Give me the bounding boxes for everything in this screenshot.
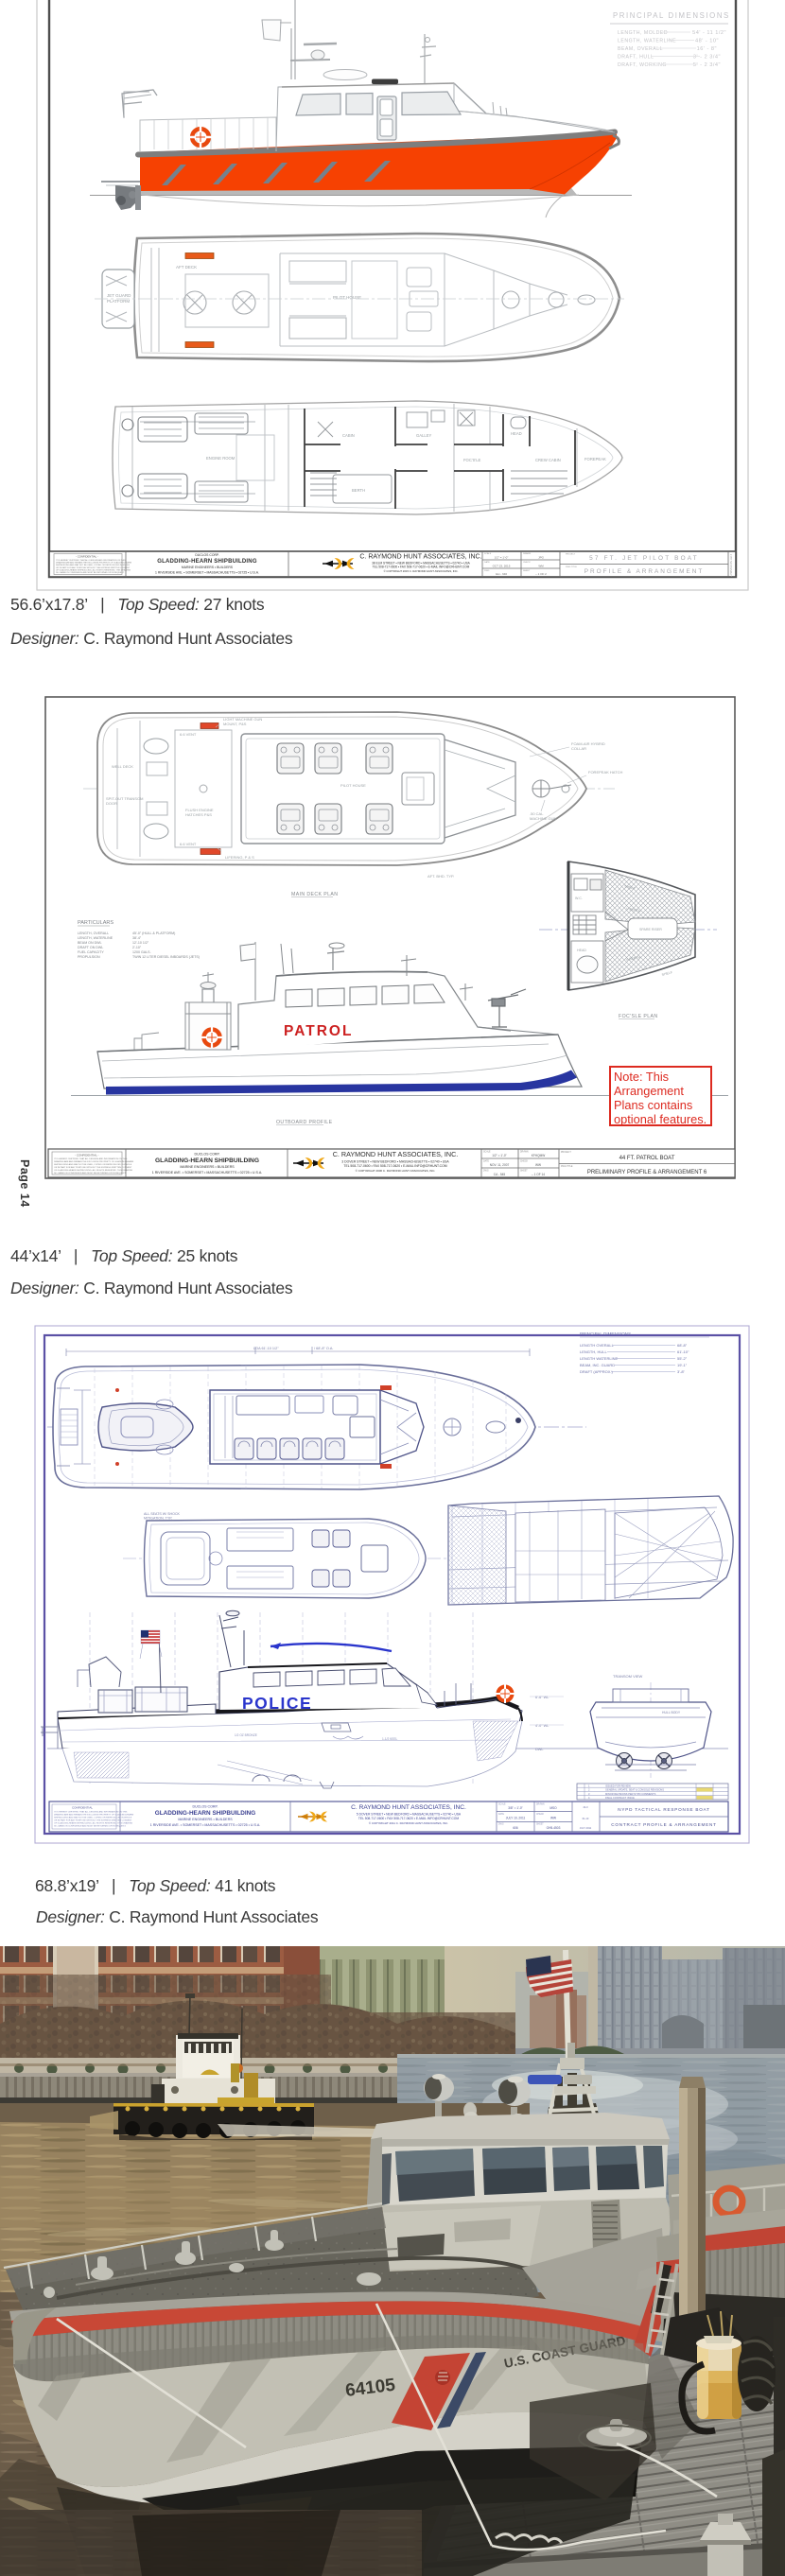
svg-text:PILOT HOUSE: PILOT HOUSE bbox=[340, 783, 366, 788]
svg-text:SHIPBUILDING AND MAY NOT BE US: SHIPBUILDING AND MAY NOT BE USED, COPIED… bbox=[54, 1163, 132, 1166]
svg-text:57 FT. JET PILOT BOAT: 57 FT. JET PILOT BOAT bbox=[589, 555, 699, 562]
svg-text:DWG TITLE: DWG TITLE bbox=[561, 1166, 573, 1168]
svg-text:IS LOANED IN CONFIDENCE AND MU: IS LOANED IN CONFIDENCE AND MUST BE RETU… bbox=[54, 1825, 127, 1828]
svg-text:1/2 OZ BRONZE: 1/2 OZ BRONZE bbox=[235, 1733, 257, 1737]
svg-text:PRINCIPAL DIMENSIONS: PRINCIPAL DIMENSIONS bbox=[580, 1332, 631, 1336]
svg-text:DUCLOS CORP.: DUCLOS CORP. bbox=[195, 553, 219, 557]
svg-text:C. RAYMOND HUNT ASSOCIATES, IN: C. RAYMOND HUNT ASSOCIATES, INC. bbox=[333, 1150, 459, 1158]
svg-text:TEL 508-717-0600 • FAX 508-717: TEL 508-717-0600 • FAX 508-717-0620 • E-… bbox=[358, 1817, 459, 1820]
svg-text:■ PRINTED ON 11x17: ■ PRINTED ON 11x17 bbox=[730, 553, 733, 577]
svg-text:GLADDING-HEARN SHIPBUILDING: GLADDING-HEARN SHIPBUILDING bbox=[157, 559, 257, 565]
svg-text:DRAFT, WORKING: DRAFT, WORKING bbox=[618, 62, 667, 68]
svg-text:GLADDING-HEARN SHIPBUILDING: GLADDING-HEARN SHIPBUILDING bbox=[155, 1810, 256, 1817]
svg-text:CHECK: CHECK bbox=[536, 1814, 545, 1816]
svg-text:WM: WM bbox=[538, 565, 544, 568]
svg-text:DRAWN: DRAWN bbox=[523, 552, 532, 555]
svg-text:LENGTH, MOLDED: LENGTH, MOLDED bbox=[618, 30, 668, 36]
svg-text:IS LOANED IN CONFIDENCE AND MU: IS LOANED IN CONFIDENCE AND MUST BE RETU… bbox=[56, 571, 125, 574]
svg-text:GLADDING-HEARN SHIPBUILDING: GLADDING-HEARN SHIPBUILDING bbox=[155, 1157, 259, 1164]
svg-text:FOREPEAK HATCH: FOREPEAK HATCH bbox=[588, 770, 622, 775]
svg-text:SHIPBUILDING AND MAY NOT BE US: SHIPBUILDING AND MAY NOT BE USED, COPIED… bbox=[54, 1817, 132, 1819]
svg-text:- CONFIDENTIAL -: - CONFIDENTIAL - bbox=[76, 555, 98, 559]
svg-text:LENGTH WATERLINE: LENGTH WATERLINE bbox=[580, 1356, 619, 1361]
svg-text:PATROL: PATROL bbox=[284, 1023, 353, 1039]
svg-text:SHEET: SHEET bbox=[523, 570, 531, 572]
svg-text:FOC'SLE PLAN: FOC'SLE PLAN bbox=[619, 1014, 658, 1019]
svg-text:SHEET: SHEET bbox=[520, 1171, 528, 1173]
svg-text:GH - 646: GH - 646 bbox=[496, 572, 508, 576]
svg-text:SCALE: SCALE bbox=[484, 552, 492, 555]
svg-text:55'-2": 55'-2" bbox=[677, 1356, 688, 1361]
svg-text:JULY 10, 2011: JULY 10, 2011 bbox=[506, 1817, 526, 1820]
svg-text:- CONFIDENTIAL -: - CONFIDENTIAL - bbox=[75, 1154, 99, 1157]
svg-text:MITIGATION. TYP.: MITIGATION. TYP. bbox=[144, 1517, 172, 1521]
svg-text:© COPYRIGHT 2015 C. RAYMOND HU: © COPYRIGHT 2015 C. RAYMOND HUNT ASSOCIA… bbox=[384, 569, 459, 573]
svg-text:DUCLOS CORP.: DUCLOS CORP. bbox=[193, 1805, 218, 1809]
svg-text:DRAFT ON DWL: DRAFT ON DWL bbox=[78, 946, 103, 949]
svg-text:JPG: JPG bbox=[538, 556, 545, 560]
svg-text:W.C.: W.C. bbox=[575, 896, 583, 900]
svg-text:1-1/2 KEEL: 1-1/2 KEEL bbox=[382, 1737, 398, 1741]
svg-text:DRAWN: DRAWN bbox=[520, 1151, 529, 1154]
svg-text:CABIN: CABIN bbox=[342, 433, 355, 438]
svg-text:38'-4": 38'-4" bbox=[132, 936, 142, 940]
svg-text:TEL 508-717-0600 • FAX 508-717: TEL 508-717-0600 • FAX 508-717-0620 • E-… bbox=[343, 1164, 446, 1168]
svg-text:1/2" = 1'-0": 1/2" = 1'-0" bbox=[495, 556, 509, 560]
svg-text:COLLAR: COLLAR bbox=[571, 746, 586, 751]
svg-text:44 FT. PATROL BOAT: 44 FT. PATROL BOAT bbox=[619, 1156, 675, 1161]
svg-text:SHIPBUILDING AND MAY NOT BE US: SHIPBUILDING AND MAY NOT BE USED, COPIED… bbox=[56, 564, 131, 566]
svg-text:MARINE ENGINEERS • BUILDERS: MARINE ENGINEERS • BUILDERS bbox=[182, 566, 234, 569]
svg-text:DRAWING ARE AND REMAIN THE EXC: DRAWING ARE AND REMAIN THE EXCLUSIVE PRO… bbox=[56, 562, 131, 565]
svg-text:FOREPEAK: FOREPEAK bbox=[584, 457, 606, 461]
svg-text:BERTH: BERTH bbox=[352, 488, 365, 493]
svg-text:OCT 23, 2015: OCT 23, 2015 bbox=[493, 565, 511, 568]
svg-text:12'-10 1/2": 12'-10 1/2" bbox=[132, 941, 149, 945]
svg-text:MINOR REVISIONS PER NYPD COMME: MINOR REVISIONS PER NYPD COMMENTS bbox=[605, 1792, 656, 1796]
svg-text:LENGTH, OVERALL: LENGTH, OVERALL bbox=[78, 931, 109, 935]
svg-text:19'-1": 19'-1" bbox=[677, 1363, 688, 1367]
svg-text:SHEET: SHEET bbox=[536, 1824, 544, 1826]
svg-text:LENGTH, HULL: LENGTH, HULL bbox=[580, 1349, 607, 1354]
svg-text:1/2" = 1'-0": 1/2" = 1'-0" bbox=[492, 1154, 507, 1157]
svg-text:PROJECT: PROJECT bbox=[561, 1152, 571, 1154]
svg-text:FOC'S'LE: FOC'S'LE bbox=[463, 458, 481, 462]
svg-text:DRAFT (APPROX.): DRAFT (APPROX.) bbox=[580, 1369, 613, 1374]
svg-text:DRAWING ARE AND REMAIN THE EXC: DRAWING ARE AND REMAIN THE EXCLUSIVE PRO… bbox=[54, 1160, 134, 1163]
svg-text:DATE: DATE bbox=[498, 1813, 504, 1816]
svg-text:HEAD: HEAD bbox=[511, 431, 522, 436]
svg-text:PROPULSION: PROPULSION bbox=[78, 955, 100, 959]
svg-text:1200 GALS.: 1200 GALS. bbox=[132, 950, 151, 954]
svg-text:CREW CABIN: CREW CABIN bbox=[535, 458, 561, 462]
svg-text:DOOR: DOOR bbox=[106, 801, 117, 806]
svg-text:C. RAYMOND HUNT ASSOCIATES, IN: C. RAYMOND HUNT ASSOCIATES, INC. bbox=[359, 554, 481, 561]
svg-text:KFHQMW: KFHQMW bbox=[532, 1154, 546, 1157]
svg-text:ALL SEATS W/ SHOCK: ALL SEATS W/ SHOCK bbox=[144, 1512, 181, 1516]
svg-text:NOV. 11, 2007: NOV. 11, 2007 bbox=[490, 1163, 510, 1167]
svg-text:IT IS HEREBY CERTIFIED THAT AL: IT IS HEREBY CERTIFIED THAT ALL DESIGNS … bbox=[54, 1157, 128, 1160]
svg-text:SPARE RISER: SPARE RISER bbox=[639, 928, 662, 931]
svg-text:45'-0" (HULL & PLATFORM): 45'-0" (HULL & PLATFORM) bbox=[132, 931, 175, 935]
svg-text:Note: This: Note: This bbox=[614, 1070, 669, 1084]
svg-text:DUCLOS CORP.: DUCLOS CORP. bbox=[195, 1153, 220, 1157]
svg-text:DATE: DATE bbox=[483, 1160, 489, 1163]
svg-text:54' - 11 1/2": 54' - 11 1/2" bbox=[692, 30, 726, 36]
svg-text:IT IS HEREBY CERTIFIED THAT AL: IT IS HEREBY CERTIFIED THAT ALL DESIGNS … bbox=[54, 1811, 128, 1814]
svg-text:LENGTH, WATERLINE: LENGTH, WATERLINE bbox=[78, 936, 113, 940]
svg-text:OF GLADDING-HEARN SHIPBUILDING: OF GLADDING-HEARN SHIPBUILDING. ALL RIGH… bbox=[54, 1822, 132, 1825]
svg-text:CONFIDENTIAL: CONFIDENTIAL bbox=[72, 1806, 93, 1810]
svg-text:AFT DECK: AFT DECK bbox=[176, 265, 197, 270]
svg-text:44-0: 44-0 bbox=[583, 1805, 588, 1809]
svg-text:OF GLADDING-HEARN SHIPBUILDING: OF GLADDING-HEARN SHIPBUILDING. ALL RIGH… bbox=[56, 568, 131, 571]
svg-text:© COPYRIGHT 2011 C. RAYMOND HU: © COPYRIGHT 2011 C. RAYMOND HUNT ASSOCIA… bbox=[369, 1821, 448, 1825]
svg-text:BEAM, INC. GUARD: BEAM, INC. GUARD bbox=[580, 1363, 615, 1367]
svg-text:HEAD: HEAD bbox=[577, 949, 586, 952]
svg-text:HULL BODY: HULL BODY bbox=[662, 1711, 681, 1714]
svg-text:MARINE ENGINEERS • BUILDERS: MARINE ENGINEERS • BUILDERS bbox=[178, 1818, 233, 1821]
svg-text:IS LOANED IN CONFIDENCE AND MU: IS LOANED IN CONFIDENCE AND MUST BE RETU… bbox=[54, 1172, 127, 1175]
svg-text:5 DOVER STREET • NEW BEDFORD •: 5 DOVER STREET • NEW BEDFORD • MASSACHUS… bbox=[357, 1813, 462, 1817]
svg-text:LIFERING, P & S: LIFERING, P & S bbox=[225, 855, 254, 860]
svg-text:© COPYRIGHT 2006 C. RAYMOND HU: © COPYRIGHT 2006 C. RAYMOND HUNT ASSOCIA… bbox=[356, 1169, 436, 1173]
svg-text:BEAM, OVERALL: BEAM, OVERALL bbox=[618, 46, 663, 52]
svg-text:TWIN 12 LITER DIESEL INBOARDS: TWIN 12 LITER DIESEL INBOARDS (JETS) bbox=[132, 955, 200, 959]
svg-text:TRANSOM VIEW: TRANSOM VIEW bbox=[613, 1674, 643, 1679]
svg-text:3 DOVER STREET • NEW BEDFORD •: 3 DOVER STREET • NEW BEDFORD • MASSACHUS… bbox=[341, 1160, 449, 1164]
svg-text:WELL DECK: WELL DECK bbox=[112, 764, 133, 769]
svg-text:MARINE ENGINEERS • BUILDERS: MARINE ENGINEERS • BUILDERS bbox=[180, 1165, 235, 1169]
svg-text:DATE: DATE bbox=[484, 561, 490, 564]
svg-text:1 RIVERSIDE AVE. • SOMERSET •: 1 RIVERSIDE AVE. • SOMERSET • MASSACHUSE… bbox=[155, 571, 259, 575]
svg-text:PROJECT: PROJECT bbox=[566, 554, 576, 556]
svg-text:PRINCIPAL DIMENSIONS: PRINCIPAL DIMENSIONS bbox=[613, 11, 730, 20]
svg-text:5' - 2 3/4": 5' - 2 3/4" bbox=[693, 62, 721, 68]
svg-text:PROFILE & ARRANGEMENT: PROFILE & ARRANGEMENT bbox=[584, 568, 705, 575]
svg-text:CA - 545: CA - 545 bbox=[494, 1173, 506, 1176]
svg-text:6.6 VENT: 6.6 VENT bbox=[180, 732, 197, 737]
svg-text:MACHINE GUN: MACHINE GUN bbox=[530, 816, 557, 821]
svg-text:GENERAL UPDATE, SEAT & CONSOLE: GENERAL UPDATE, SEAT & CONSOLE REVISIONS bbox=[605, 1788, 664, 1792]
svg-text:CHECK: CHECK bbox=[520, 1161, 529, 1163]
svg-text:3'-8": 3'-8" bbox=[677, 1369, 686, 1374]
svg-text:IT IS HEREBY CERTIFIED THAT AL: IT IS HEREBY CERTIFIED THAT ALL DESIGNS … bbox=[56, 559, 126, 562]
svg-text:TEL 508-717-0600 • FAX 508-717: TEL 508-717-0600 • FAX 508-717-0620 • E-… bbox=[373, 566, 470, 569]
svg-text:3' - 2 3/4": 3' - 2 3/4" bbox=[693, 55, 721, 61]
svg-text:OR IN PART FOR ANY PURPOSE WIT: OR IN PART FOR ANY PURPOSE WITHOUT THE E… bbox=[54, 1819, 132, 1822]
svg-text:AFT. BHD. TYP.: AFT. BHD. TYP. bbox=[427, 874, 454, 879]
svg-text:PARTICULARS: PARTICULARS bbox=[78, 920, 113, 926]
svg-text:1 RIVERSIDE AVE. • SOMERSET •: 1 RIVERSIDE AVE. • SOMERSET • MASSACHUSE… bbox=[152, 1171, 263, 1175]
svg-text:MOUNT, P&S: MOUNT, P&S bbox=[223, 722, 247, 726]
svg-text:WW: WW bbox=[550, 1817, 556, 1820]
svg-text:FINAL CONTRACT ISSUE: FINAL CONTRACT ISSUE bbox=[605, 1796, 635, 1800]
svg-text:FUEL CAPACITY: FUEL CAPACITY bbox=[78, 950, 104, 954]
svg-text:POLICE: POLICE bbox=[242, 1694, 312, 1713]
svg-text:DRAWING ARE AND REMAIN THE EXC: DRAWING ARE AND REMAIN THE EXCLUSIVE PRO… bbox=[54, 1814, 134, 1817]
svg-text:C. RAYMOND HUNT ASSOCIATES, IN: C. RAYMOND HUNT ASSOCIATES, INC. bbox=[351, 1804, 466, 1811]
svg-text:SCALE: SCALE bbox=[483, 1151, 491, 1154]
svg-text:GALLEY: GALLEY bbox=[416, 433, 432, 438]
svg-text:ENGINE ROOM: ENGINE ROOM bbox=[206, 456, 235, 461]
svg-text:LOA 61'-10 1/2": LOA 61'-10 1/2" bbox=[253, 1347, 279, 1350]
svg-text:PLATFORM: PLATFORM bbox=[107, 299, 130, 304]
svg-text:SCALE: SCALE bbox=[498, 1803, 506, 1806]
svg-text:MSO: MSO bbox=[549, 1806, 557, 1810]
svg-text:PRELIMINARY PROFILE & ARRANGEM: PRELIMINARY PROFILE & ARRANGEMENT 6 bbox=[587, 1170, 707, 1175]
svg-text:DWG: DWG bbox=[483, 1171, 489, 1173]
svg-text:3/8" = 1'-0": 3/8" = 1'-0" bbox=[508, 1806, 523, 1810]
svg-text:OR IN PART FOR ANY PURPOSE WIT: OR IN PART FOR ANY PURPOSE WITHOUT THE E… bbox=[54, 1166, 132, 1169]
svg-text:CONTRACT PROFILE & ARRANGEMENT: CONTRACT PROFILE & ARRANGEMENT bbox=[611, 1822, 716, 1827]
svg-text:2'-10": 2'-10" bbox=[132, 946, 142, 949]
svg-text:48' - 10": 48' - 10" bbox=[695, 39, 719, 44]
svg-text:OUTBOARD PROFILE: OUTBOARD PROFILE bbox=[276, 1120, 333, 1125]
svg-text:HATCHES P&S: HATCHES P&S bbox=[185, 812, 212, 817]
svg-text:optional features.: optional features. bbox=[614, 1112, 706, 1126]
svg-text:CHECK: CHECK bbox=[523, 562, 531, 564]
svg-text:1 RIVERSIDE AVE. • SOMERSET •: 1 RIVERSIDE AVE. • SOMERSET • MASSACHUSE… bbox=[150, 1823, 261, 1827]
svg-text:Arrangement: Arrangement bbox=[614, 1084, 684, 1098]
svg-text:MAIN DECK PLAN: MAIN DECK PLAN bbox=[291, 892, 338, 897]
svg-text:OR IN PART FOR ANY PURPOSE WIT: OR IN PART FOR ANY PURPOSE WITHOUT THE E… bbox=[56, 566, 131, 569]
svg-text:– 1 OF 14: – 1 OF 14 bbox=[532, 1173, 545, 1176]
svg-text:JULY 2011: JULY 2011 bbox=[580, 1826, 592, 1830]
svg-text:Plans contains: Plans contains bbox=[614, 1098, 692, 1112]
svg-text:GH5-4503: GH5-4503 bbox=[547, 1826, 561, 1830]
svg-text:WW: WW bbox=[535, 1163, 541, 1167]
svg-text:61-10: 61-10 bbox=[583, 1817, 589, 1820]
svg-text:6.6 VENT: 6.6 VENT bbox=[180, 842, 197, 846]
svg-text:JET GUARD: JET GUARD bbox=[107, 293, 131, 298]
svg-text:LENGTH, WATERLINE: LENGTH, WATERLINE bbox=[618, 39, 676, 44]
svg-text:DWL: DWL bbox=[535, 1748, 543, 1751]
svg-text:BEAM ON DWL: BEAM ON DWL bbox=[78, 941, 102, 945]
svg-text:68'-8": 68'-8" bbox=[677, 1343, 688, 1348]
svg-text:DRAFT, HULL: DRAFT, HULL bbox=[618, 55, 654, 61]
svg-text:NYPD TACTICAL RESPONSE BOAT: NYPD TACTICAL RESPONSE BOAT bbox=[618, 1807, 710, 1812]
svg-text:/ 68'-8" O.A.: / 68'-8" O.A. bbox=[314, 1347, 333, 1350]
svg-text:4'-0" WL: 4'-0" WL bbox=[535, 1724, 549, 1728]
svg-text:DWG TITLE: DWG TITLE bbox=[566, 566, 577, 568]
svg-text:DWG: DWG bbox=[498, 1824, 504, 1826]
svg-text:OF GLADDING-HEARN SHIPBUILDING: OF GLADDING-HEARN SHIPBUILDING. ALL RIGH… bbox=[54, 1169, 132, 1172]
svg-text:ISSUED FOR REVIEW: ISSUED FOR REVIEW bbox=[605, 1784, 631, 1788]
svg-text:LENGTH OVERALL: LENGTH OVERALL bbox=[580, 1343, 615, 1348]
svg-text:61'-10": 61'-10" bbox=[677, 1349, 689, 1354]
svg-text:– 1 OF 2: – 1 OF 2 bbox=[535, 572, 547, 576]
svg-text:DWG: DWG bbox=[484, 570, 490, 572]
svg-text:606: 606 bbox=[513, 1826, 518, 1830]
svg-text:16' - 8": 16' - 8" bbox=[697, 46, 717, 52]
svg-text:6'-6" WL: 6'-6" WL bbox=[535, 1696, 549, 1699]
svg-text:DRAWN: DRAWN bbox=[536, 1803, 545, 1806]
